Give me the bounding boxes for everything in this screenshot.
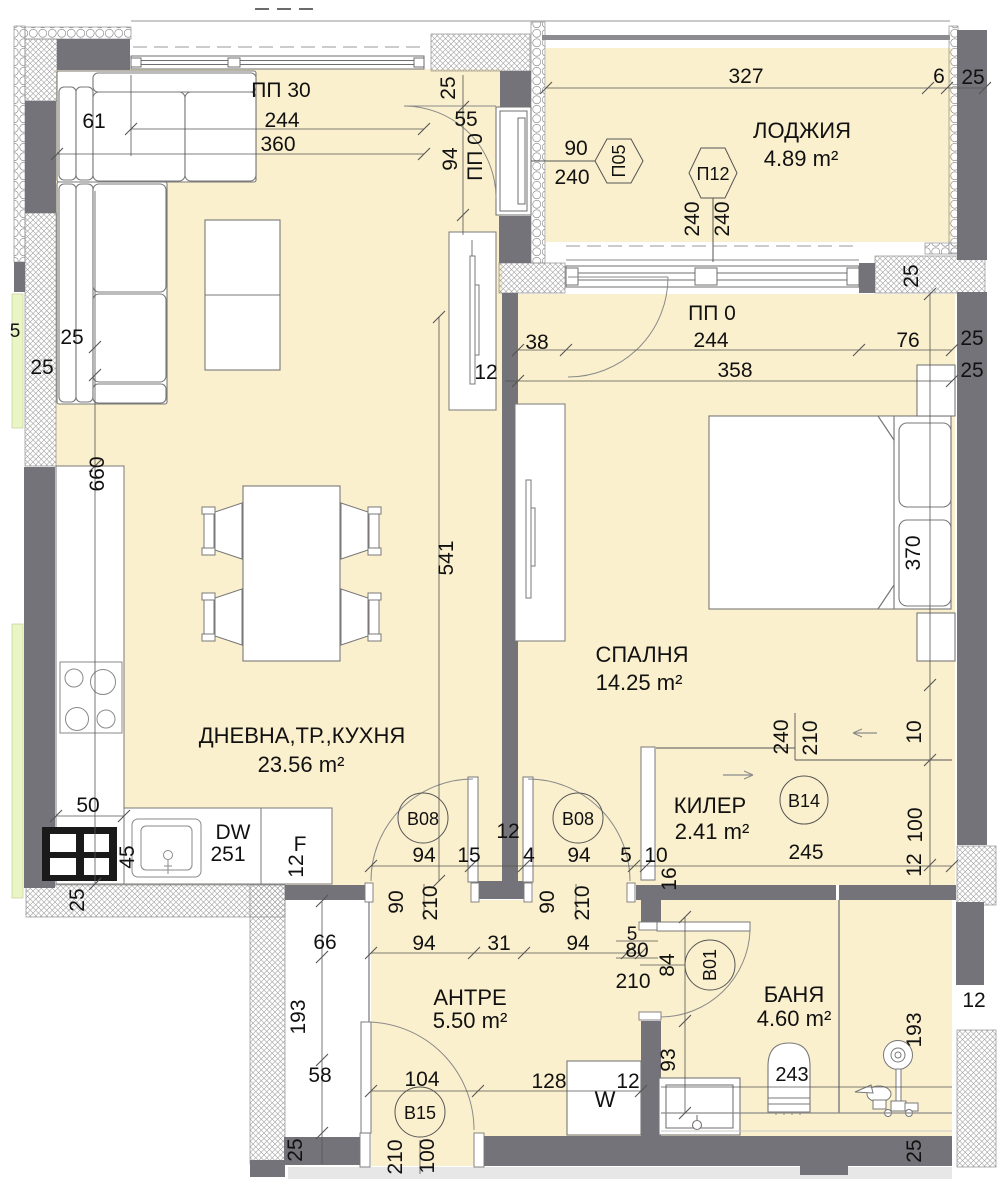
svg-text:16: 16 — [658, 867, 681, 890]
svg-text:АНТРЕ: АНТРЕ — [433, 985, 506, 1010]
svg-text:210: 210 — [384, 1139, 407, 1174]
svg-text:12: 12 — [903, 853, 926, 876]
svg-text:25: 25 — [960, 359, 983, 382]
svg-text:12: 12 — [496, 820, 519, 843]
svg-text:25: 25 — [903, 1139, 926, 1162]
svg-text:W: W — [595, 1087, 616, 1112]
svg-text:4.89 m²: 4.89 m² — [764, 146, 839, 171]
svg-text:23.56 m²: 23.56 m² — [258, 752, 345, 777]
svg-text:БАНЯ: БАНЯ — [764, 982, 824, 1007]
svg-text:25: 25 — [60, 326, 83, 349]
svg-text:58: 58 — [308, 1064, 331, 1087]
svg-text:244: 244 — [693, 329, 728, 352]
svg-text:94: 94 — [566, 932, 590, 955]
svg-text:193: 193 — [903, 1012, 926, 1047]
svg-text:358: 358 — [717, 359, 752, 382]
svg-text:94: 94 — [567, 844, 591, 867]
svg-text:ДНЕВНА,ТР.,КУХНЯ: ДНЕВНА,ТР.,КУХНЯ — [199, 723, 405, 748]
svg-text:25: 25 — [437, 76, 460, 99]
svg-text:94: 94 — [412, 844, 436, 867]
svg-text:94: 94 — [412, 932, 436, 955]
svg-text:12: 12 — [474, 361, 497, 384]
svg-text:12: 12 — [962, 989, 985, 1012]
svg-text:2.41 m²: 2.41 m² — [675, 819, 750, 844]
svg-text:240: 240 — [554, 166, 589, 189]
svg-text:90: 90 — [385, 890, 408, 913]
svg-text:45: 45 — [116, 845, 139, 868]
svg-text:5: 5 — [620, 844, 632, 867]
svg-text:25: 25 — [900, 264, 923, 287]
svg-text:90: 90 — [536, 890, 559, 913]
svg-text:25: 25 — [284, 1138, 307, 1161]
svg-text:14.25 m²: 14.25 m² — [596, 670, 683, 695]
svg-text:25: 25 — [961, 66, 984, 89]
svg-text:B01: B01 — [700, 949, 720, 981]
svg-text:DW: DW — [216, 821, 251, 844]
svg-text:76: 76 — [896, 329, 919, 352]
svg-text:370: 370 — [902, 535, 925, 570]
svg-text:КИЛЕР: КИЛЕР — [674, 793, 746, 818]
svg-text:4.60 m²: 4.60 m² — [757, 1006, 832, 1031]
svg-text:541: 541 — [435, 540, 458, 575]
svg-text:660: 660 — [86, 456, 109, 491]
svg-text:ПП 0: ПП 0 — [688, 302, 736, 325]
svg-text:25: 25 — [30, 356, 53, 379]
svg-text:П05: П05 — [609, 145, 629, 178]
svg-text:210: 210 — [615, 970, 650, 993]
svg-text:244: 244 — [264, 109, 299, 132]
svg-text:B14: B14 — [788, 791, 820, 811]
svg-text:СПАЛНЯ: СПАЛНЯ — [595, 642, 688, 667]
svg-text:94: 94 — [439, 147, 462, 171]
svg-text:93: 93 — [657, 1048, 680, 1071]
svg-text:B08: B08 — [407, 809, 439, 829]
svg-text:B08: B08 — [562, 809, 594, 829]
svg-text:50: 50 — [76, 794, 99, 817]
svg-text:F: F — [294, 833, 307, 856]
svg-text:25: 25 — [960, 327, 983, 350]
svg-text:100: 100 — [904, 807, 927, 842]
svg-text:B15: B15 — [404, 1103, 436, 1123]
svg-text:12: 12 — [616, 1070, 639, 1093]
svg-text:360: 360 — [260, 133, 295, 156]
svg-text:240: 240 — [711, 201, 734, 236]
svg-text:10: 10 — [644, 844, 667, 867]
svg-text:210: 210 — [799, 720, 822, 755]
svg-text:80: 80 — [625, 939, 648, 962]
svg-text:104: 104 — [404, 1068, 439, 1091]
svg-text:84: 84 — [656, 953, 679, 977]
svg-text:240: 240 — [681, 201, 704, 236]
svg-text:55: 55 — [454, 108, 477, 131]
svg-text:15: 15 — [457, 844, 480, 867]
svg-text:10: 10 — [903, 720, 926, 743]
svg-text:ПП 30: ПП 30 — [251, 79, 310, 102]
svg-text:5.50 m²: 5.50 m² — [433, 1008, 508, 1033]
svg-text:243: 243 — [775, 1064, 808, 1086]
svg-text:4: 4 — [523, 844, 535, 867]
svg-text:31: 31 — [487, 932, 510, 955]
svg-text:25: 25 — [66, 888, 89, 911]
svg-text:210: 210 — [419, 885, 442, 920]
svg-text:128: 128 — [531, 1070, 566, 1093]
svg-text:240: 240 — [770, 719, 793, 754]
svg-text:ПП 0: ПП 0 — [464, 133, 487, 181]
svg-text:66: 66 — [313, 931, 336, 954]
svg-text:ЛОДЖИЯ: ЛОДЖИЯ — [753, 118, 851, 143]
svg-text:327: 327 — [728, 65, 763, 88]
svg-text:38: 38 — [525, 331, 548, 354]
svg-text:6: 6 — [933, 65, 945, 88]
svg-text:210: 210 — [571, 885, 594, 920]
svg-text:12: 12 — [285, 854, 308, 877]
svg-text:61: 61 — [82, 110, 105, 133]
svg-text:5: 5 — [10, 321, 21, 342]
svg-text:193: 193 — [287, 999, 310, 1034]
svg-text:90: 90 — [564, 137, 587, 160]
svg-text:100: 100 — [416, 1138, 439, 1173]
svg-text:П12: П12 — [697, 164, 730, 184]
svg-text:251: 251 — [210, 843, 245, 866]
svg-text:245: 245 — [788, 841, 823, 864]
